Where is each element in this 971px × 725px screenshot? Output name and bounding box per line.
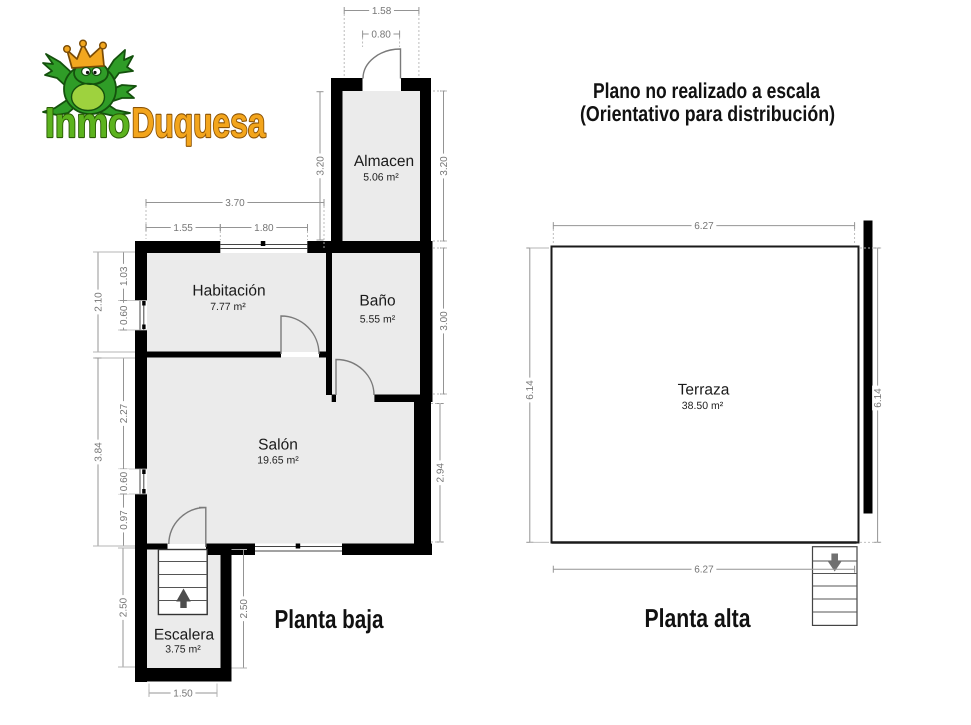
svg-text:6.27: 6.27 (694, 565, 714, 576)
svg-text:3.84: 3.84 (93, 442, 104, 462)
svg-text:1.03: 1.03 (119, 266, 130, 286)
svg-text:7.77 m²: 7.77 m² (210, 301, 246, 313)
svg-text:2.27: 2.27 (119, 403, 130, 423)
svg-text:0.97: 0.97 (119, 510, 130, 530)
svg-text:6.14: 6.14 (873, 388, 884, 408)
svg-text:5.55 m²: 5.55 m² (360, 314, 396, 326)
svg-text:3.70: 3.70 (225, 198, 245, 209)
svg-text:6.14: 6.14 (525, 380, 536, 400)
svg-text:Planta alta: Planta alta (645, 603, 751, 633)
svg-text:Escalera: Escalera (154, 627, 215, 644)
svg-text:Habitación: Habitación (192, 283, 265, 300)
svg-text:1.55: 1.55 (173, 223, 193, 234)
svg-text:Planta baja: Planta baja (275, 604, 384, 634)
svg-text:19.65 m²: 19.65 m² (257, 455, 299, 467)
svg-text:3.00: 3.00 (439, 311, 450, 331)
svg-text:1.58: 1.58 (372, 6, 392, 17)
svg-text:1.50: 1.50 (173, 688, 193, 699)
svg-text:Almacen: Almacen (354, 153, 414, 170)
svg-text:3.20: 3.20 (315, 156, 326, 176)
svg-text:3.75 m²: 3.75 m² (165, 644, 201, 656)
svg-text:1.80: 1.80 (254, 223, 274, 234)
svg-text:0.60: 0.60 (119, 471, 130, 491)
svg-text:2.10: 2.10 (93, 292, 104, 312)
svg-text:Inmo: Inmo (45, 99, 130, 146)
svg-text:38.50 m²: 38.50 m² (682, 400, 724, 412)
svg-text:Terraza: Terraza (678, 382, 730, 399)
svg-text:Plano no realizado a escala: Plano no realizado a escala (593, 79, 821, 103)
svg-text:0.60: 0.60 (119, 305, 130, 325)
svg-text:(Orientativo para distribución: (Orientativo para distribución) (580, 102, 835, 126)
svg-text:0.80: 0.80 (371, 29, 391, 40)
svg-text:2.50: 2.50 (239, 599, 250, 619)
svg-text:5.06 m²: 5.06 m² (363, 172, 399, 184)
svg-text:Salón: Salón (258, 437, 298, 454)
svg-text:Baño: Baño (359, 293, 395, 310)
svg-text:2.50: 2.50 (118, 597, 129, 617)
svg-text:Duquesa: Duquesa (132, 99, 266, 146)
svg-text:3.20: 3.20 (439, 156, 450, 176)
svg-text:2.94: 2.94 (435, 463, 446, 483)
svg-text:6.27: 6.27 (694, 221, 714, 232)
